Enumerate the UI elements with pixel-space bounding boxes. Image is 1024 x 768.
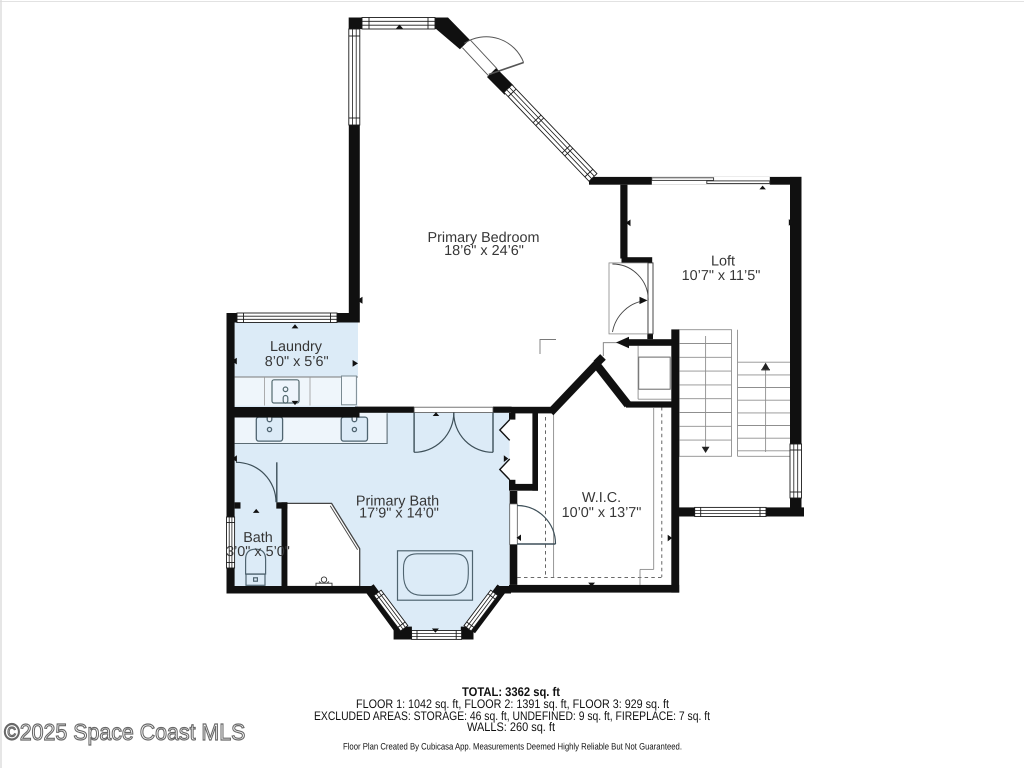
svg-text:10’7" x 11’5": 10’7" x 11’5" <box>682 268 761 284</box>
svg-text:3’0" x 5’0": 3’0" x 5’0" <box>226 544 290 560</box>
svg-text:Floor Plan Created By Cubicasa: Floor Plan Created By Cubicasa App. Meas… <box>343 742 682 752</box>
svg-text:WALLS: 260 sq. ft: WALLS: 260 sq. ft <box>467 720 555 734</box>
svg-text:18’6" x 24’6": 18’6" x 24’6" <box>444 243 524 259</box>
svg-text:8’0" x 5’6": 8’0" x 5’6" <box>265 354 329 370</box>
svg-text:Loft: Loft <box>711 253 735 269</box>
svg-text:Laundry: Laundry <box>270 339 323 355</box>
svg-text:W.I.C.: W.I.C. <box>582 490 621 506</box>
svg-text:10’0" x 13’7": 10’0" x 13’7" <box>562 505 642 521</box>
svg-text:17’9" x 14’0": 17’9" x 14’0" <box>359 506 439 522</box>
